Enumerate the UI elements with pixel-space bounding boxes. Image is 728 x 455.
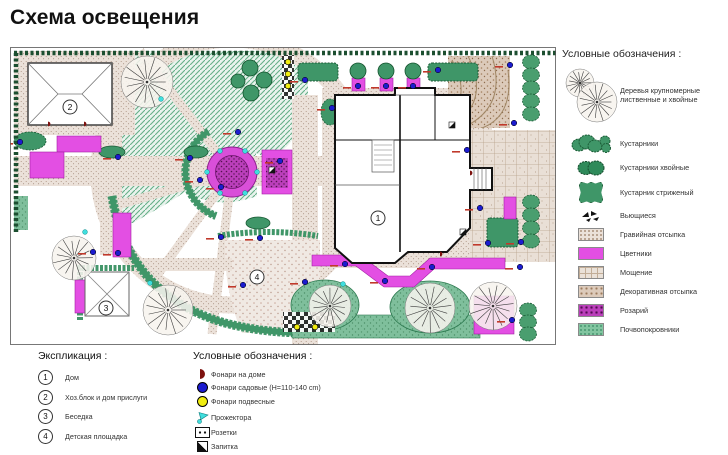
- flower-beds-swatch: [562, 247, 620, 260]
- trimmed-shrub-icon: [562, 182, 620, 203]
- lighting-legend: Условные обозначения : Фонари на доме Фо…: [193, 350, 373, 455]
- lighting-label: Розетки: [211, 428, 237, 437]
- house-lamp-icon: [193, 369, 211, 379]
- lighting-legend-header: Условные обозначения :: [193, 350, 373, 362]
- floodlight-icon: [193, 411, 211, 424]
- legend-label: Розарий: [620, 306, 648, 315]
- svg-text:4: 4: [255, 272, 260, 282]
- decorative-fill-swatch: [562, 285, 620, 298]
- power-feed-icon: [193, 441, 211, 452]
- legend-item-shrubs: Кустарники: [562, 134, 726, 154]
- socket-icon: [193, 427, 211, 438]
- explication-item-outbuilding: 2 Хоз.блок и дом прислуги: [38, 390, 188, 405]
- legend-label: Деревья крупномерные лиственные и хвойны…: [620, 86, 726, 104]
- legend-item-conifer-shrubs: Кустарники хвойные: [562, 160, 726, 176]
- legend-item-large-tree: Деревья крупномерные лиственные и хвойны…: [562, 66, 726, 124]
- number-badge: 1: [38, 370, 53, 385]
- explication-header: Экспликация :: [38, 350, 188, 362]
- legend-label: Мощение: [620, 268, 652, 277]
- svg-text:2: 2: [68, 102, 73, 112]
- page-title: Схема освещения: [10, 6, 199, 30]
- lighting-label: Фонари на доме: [211, 370, 266, 379]
- svg-text:3: 3: [104, 303, 109, 313]
- explication-item-gazebo: 3 Беседка: [38, 409, 188, 424]
- shrub-blob: [99, 146, 125, 158]
- hedge-block-2: [428, 63, 478, 81]
- number-badge: 2: [38, 390, 53, 405]
- legend-label: Гравийная отсыпка: [620, 230, 685, 239]
- lighting-item-pendant-lamp: Фонари подвесные: [193, 396, 373, 407]
- number-badge: 3: [38, 409, 53, 424]
- explication-label: Дом: [65, 373, 79, 382]
- large-tree-icon: [562, 66, 620, 124]
- gravel-swatch: [562, 228, 620, 241]
- legend-item-rosary: Розарий: [562, 304, 726, 317]
- shrub-blob: [246, 217, 270, 229]
- explication-label: Детская площадка: [65, 432, 127, 441]
- legend-item-ground-cover: Почвопокровники: [562, 323, 726, 336]
- lighting-item-power-feed: Запитка: [193, 441, 373, 452]
- site-plan-drawing: 1234: [10, 47, 556, 345]
- lighting-label: Прожектора: [211, 413, 251, 422]
- svg-text:1: 1: [376, 213, 381, 223]
- ground-cover-swatch: [562, 323, 620, 336]
- legend-label: Кустарники хвойные: [620, 163, 689, 172]
- explication-item-playground: 4 Детская площадка: [38, 429, 188, 444]
- legend-item-flower-beds: Цветники: [562, 247, 726, 260]
- legend-item-trimmed-shrub: Кустарник стриженый: [562, 182, 726, 203]
- round-rosary-center: [216, 156, 249, 189]
- lighting-item-socket: Розетки: [193, 427, 373, 438]
- lighting-label: Фонари садовые (H=110-140 cm): [211, 383, 321, 392]
- lighting-item-house-lamp: Фонари на доме: [193, 369, 373, 379]
- paving-swatch: [562, 266, 620, 279]
- climbers-icon: [562, 209, 620, 222]
- explication-label: Хоз.блок и дом прислуги: [65, 393, 147, 402]
- legend-item-decorative-fill: Декоративная отсыпка: [562, 285, 726, 298]
- outbuilding: [28, 63, 112, 125]
- shrubs-icon: [562, 134, 620, 154]
- legend-label: Кустарник стриженый: [620, 188, 694, 197]
- pendant-lamp-icon: [193, 396, 211, 407]
- legend-label: Декоративная отсыпка: [620, 287, 697, 296]
- legend-item-gravel: Гравийная отсыпка: [562, 228, 726, 241]
- lighting-item-garden-lamp: Фонари садовые (H=110-140 cm): [193, 382, 373, 393]
- conifer-shrubs-icon: [562, 160, 620, 176]
- lighting-item-floodlight: Прожектора: [193, 411, 373, 424]
- legend-label: Кустарники: [620, 139, 658, 148]
- rosary-swatch: [562, 304, 620, 317]
- legend-label: Вьющиеся: [620, 211, 656, 220]
- lighting-scheme-page: Схема освещения: [0, 0, 728, 452]
- planting-legend-header: Условные обозначения :: [562, 48, 726, 60]
- legend-label: Почвопокровники: [620, 325, 679, 334]
- explication: Экспликация : 1 Дом 2 Хоз.блок и дом при…: [38, 350, 188, 448]
- legend-item-climbers: Вьющиеся: [562, 209, 726, 222]
- legend-label: Цветники: [620, 249, 652, 258]
- planting-legend: Условные обозначения : Деревья крупномер…: [562, 48, 726, 342]
- legend-item-paving: Мощение: [562, 266, 726, 279]
- hedge-block-3: [487, 218, 518, 247]
- lighting-label: Запитка: [211, 442, 238, 451]
- garden-lamp-icon: [193, 382, 211, 393]
- site-plan: 1234: [10, 47, 556, 345]
- explication-label: Беседка: [65, 412, 93, 421]
- lighting-label: Фонари подвесные: [211, 397, 275, 406]
- number-badge: 4: [38, 429, 53, 444]
- explication-item-house: 1 Дом: [38, 370, 188, 385]
